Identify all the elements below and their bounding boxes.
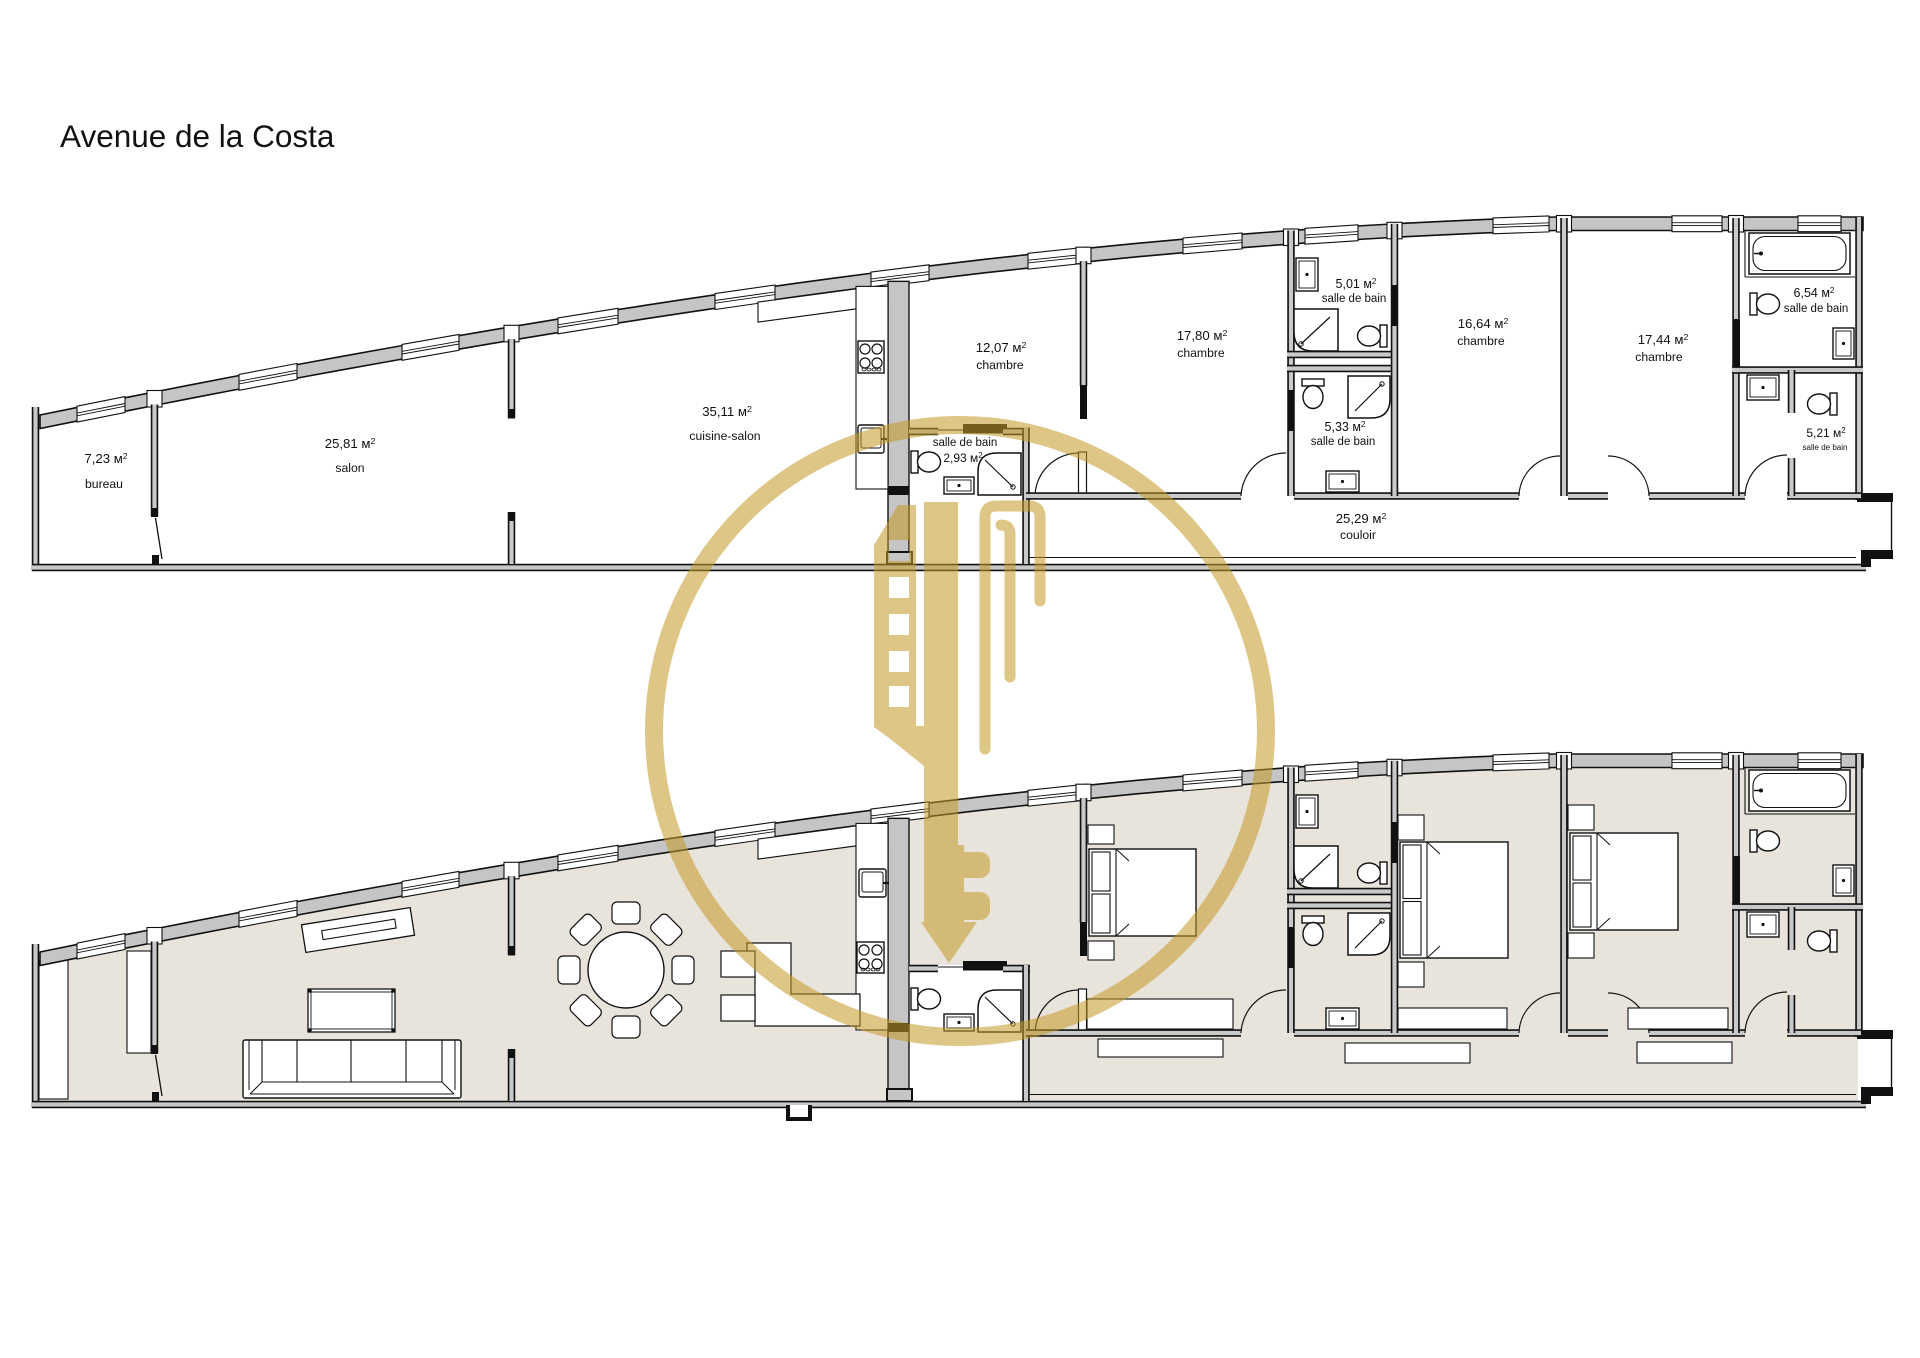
svg-text:6,54 м2: 6,54 м2 bbox=[1794, 286, 1835, 300]
svg-text:salle de bain: salle de bain bbox=[1311, 436, 1376, 448]
svg-text:17,44 м2: 17,44 м2 bbox=[1638, 332, 1689, 347]
svg-text:Avenue de la Costa: Avenue de la Costa bbox=[60, 118, 335, 154]
svg-text:25,81 м2: 25,81 м2 bbox=[325, 436, 376, 451]
svg-text:5,01 м2: 5,01 м2 bbox=[1336, 277, 1377, 291]
svg-text:salle de bain: salle de bain bbox=[1322, 293, 1387, 305]
svg-text:17,80 м2: 17,80 м2 bbox=[1177, 328, 1228, 343]
svg-text:chambre: chambre bbox=[976, 358, 1024, 372]
svg-text:chambre: chambre bbox=[1457, 334, 1505, 348]
svg-text:salle de bain: salle de bain bbox=[933, 437, 998, 449]
svg-text:2,93 м2: 2,93 м2 bbox=[943, 451, 982, 465]
svg-text:cuisine-salon: cuisine-salon bbox=[689, 429, 760, 443]
svg-text:5,21 м2: 5,21 м2 bbox=[1806, 426, 1845, 440]
svg-text:bureau: bureau bbox=[85, 477, 123, 491]
svg-text:35,11 м2: 35,11 м2 bbox=[702, 404, 752, 419]
svg-text:salle de bain: salle de bain bbox=[1784, 303, 1849, 315]
svg-text:5,33 м2: 5,33 м2 bbox=[1325, 420, 1366, 434]
svg-text:16,64 м2: 16,64 м2 bbox=[1458, 316, 1509, 331]
svg-text:chambre: chambre bbox=[1635, 350, 1683, 364]
svg-text:salle de bain: salle de bain bbox=[1803, 443, 1848, 452]
svg-text:chambre: chambre bbox=[1177, 346, 1225, 360]
svg-text:25,29 м2: 25,29 м2 bbox=[1336, 511, 1387, 526]
svg-text:12,07 м2: 12,07 м2 bbox=[976, 340, 1027, 355]
svg-text:7,23 м2: 7,23 м2 bbox=[84, 451, 127, 466]
svg-text:couloir: couloir bbox=[1340, 528, 1376, 542]
svg-text:salon: salon bbox=[335, 461, 364, 475]
